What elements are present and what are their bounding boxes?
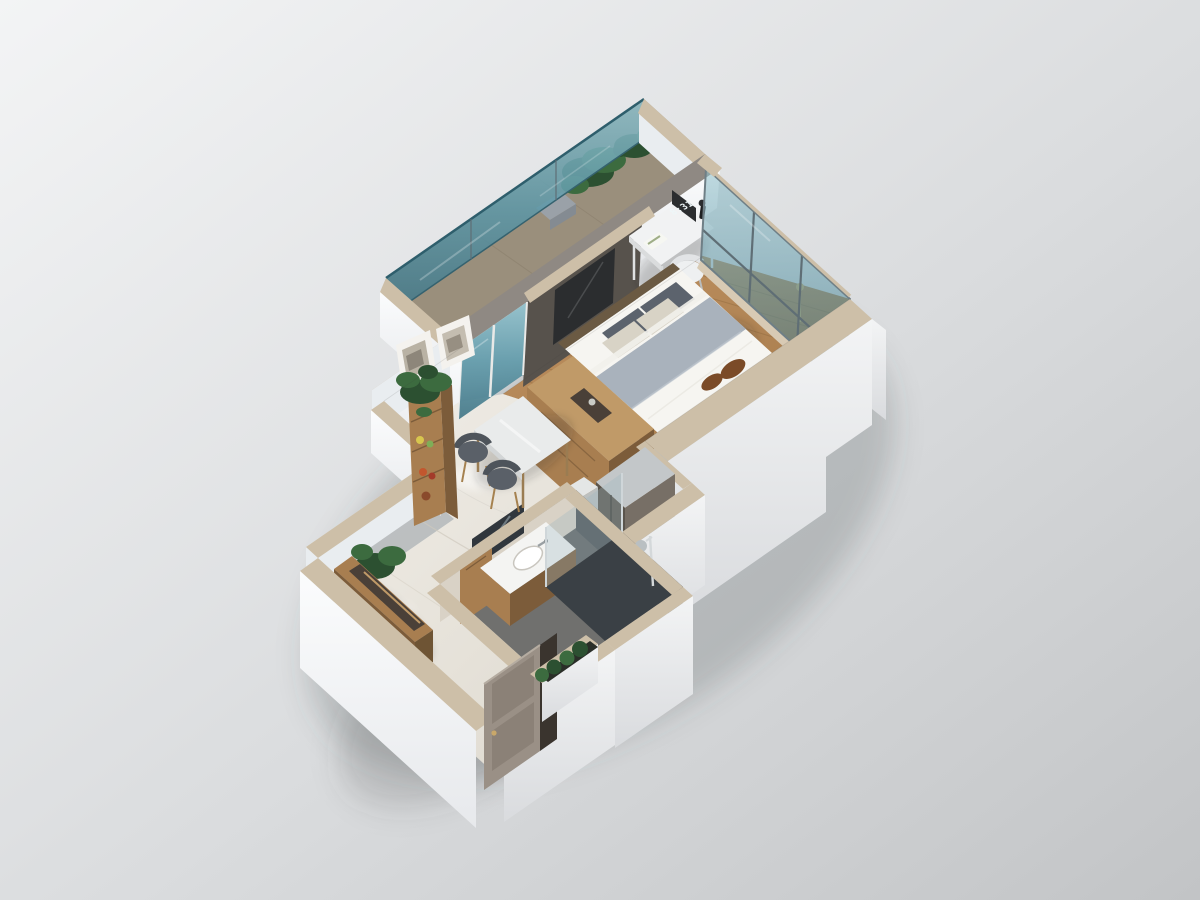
shelf-plant — [416, 407, 432, 417]
planter-bush-4 — [535, 668, 549, 682]
render-canvas: 8:31 — [0, 0, 1200, 900]
shelf-fruit-yellow — [416, 436, 424, 444]
door-handle — [491, 730, 496, 735]
floorplan-3d-render: 8:31 — [0, 0, 1200, 900]
planter-bush-1 — [572, 641, 588, 657]
planter-bush-2 — [560, 651, 575, 666]
planter-bush-3 — [547, 660, 562, 675]
shelf-fruit-orange — [419, 468, 427, 476]
